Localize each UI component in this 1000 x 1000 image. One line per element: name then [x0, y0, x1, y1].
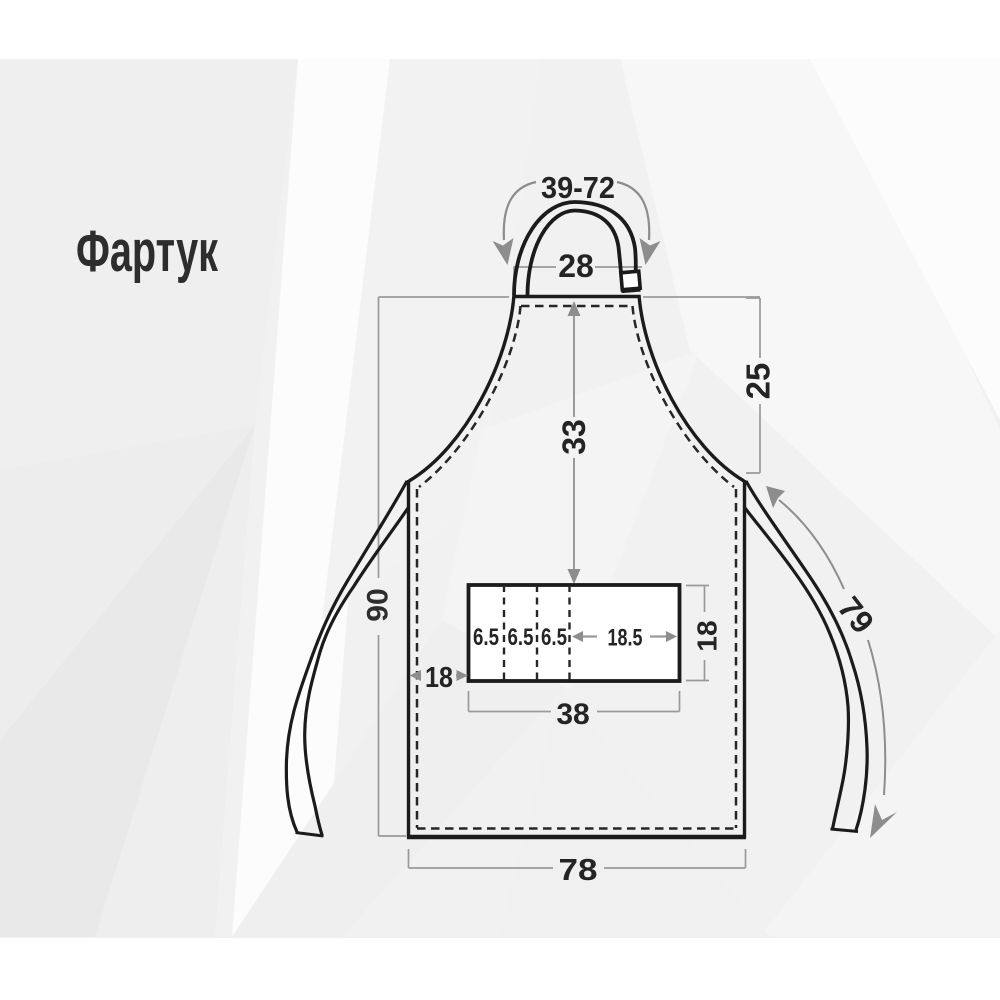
svg-text:6.5: 6.5 [508, 624, 534, 651]
svg-text:78: 78 [559, 852, 598, 887]
svg-text:39-72: 39-72 [541, 170, 615, 205]
svg-text:28: 28 [558, 248, 594, 284]
svg-text:25: 25 [740, 363, 777, 400]
svg-text:18: 18 [692, 620, 723, 651]
svg-text:18: 18 [425, 662, 453, 694]
svg-text:6.5: 6.5 [473, 624, 499, 651]
svg-text:6.5: 6.5 [541, 624, 567, 651]
svg-text:33: 33 [556, 419, 592, 455]
svg-text:18.5: 18.5 [608, 625, 643, 652]
svg-text:38: 38 [556, 698, 589, 731]
svg-text:Фартук: Фартук [76, 219, 219, 284]
svg-text:90: 90 [362, 588, 395, 621]
